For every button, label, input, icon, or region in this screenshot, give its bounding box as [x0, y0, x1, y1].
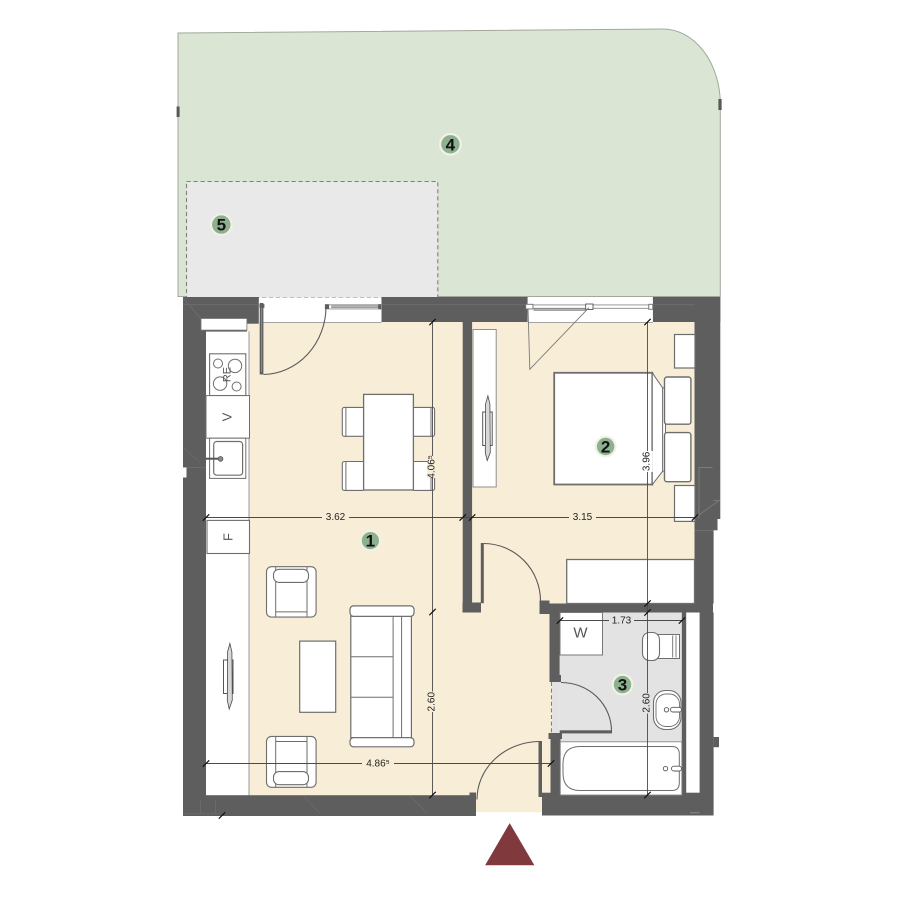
svg-text:2.60: 2.60 — [642, 693, 653, 713]
svg-text:V: V — [220, 412, 235, 421]
svg-text:1.73: 1.73 — [612, 615, 632, 626]
svg-text:3.62: 3.62 — [326, 512, 346, 523]
svg-text:4.86⁵: 4.86⁵ — [366, 758, 390, 769]
svg-text:F: F — [221, 533, 236, 541]
svg-text:3.96: 3.96 — [642, 451, 653, 471]
svg-text:W: W — [573, 624, 588, 641]
svg-text:3: 3 — [618, 676, 627, 695]
svg-text:2.60: 2.60 — [426, 692, 437, 712]
svg-text:1: 1 — [366, 532, 375, 551]
svg-text:5: 5 — [217, 216, 226, 235]
svg-text:3.15: 3.15 — [573, 512, 593, 523]
svg-text:2: 2 — [601, 438, 610, 457]
svg-text:4.06⁵: 4.06⁵ — [426, 455, 437, 479]
svg-text:RE: RE — [222, 367, 234, 382]
svg-text:4: 4 — [446, 135, 456, 154]
